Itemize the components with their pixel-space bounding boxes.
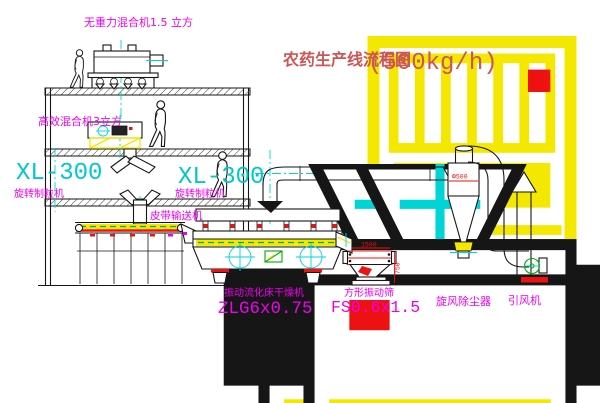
granulator-left-name: 旋转制粒机 <box>14 187 64 200</box>
granulator-left-model: XL-300 <box>16 160 102 187</box>
gravity-mixer <box>88 45 168 89</box>
granulator-right-model: XL-300 <box>178 164 264 191</box>
cad-flowsheet-canvas: 000 <box>0 0 600 403</box>
screen-model-label: FS0.6x1.5 <box>331 298 420 317</box>
pesticide-line-drawing: 000 <box>0 0 600 403</box>
worker-1 <box>70 50 83 88</box>
cyclone-dimension: Φ500 <box>452 174 468 181</box>
gravity-mixer-label: 无重力混合机1.5 立方 <box>84 15 193 29</box>
belt-conveyor-label: 皮带输送机 <box>150 209 203 222</box>
cyclone-name-label: 旋风除尘器 <box>436 294 491 308</box>
high-mixer-label: 高效混合机3立方 <box>38 114 122 128</box>
screen-height-dimension: 750 <box>395 262 402 274</box>
conveyor-supports <box>77 233 184 284</box>
belt-conveyor <box>75 223 196 244</box>
fan-name-label: 引风机 <box>508 293 541 307</box>
screen-width-dimension: 1500 <box>361 242 377 249</box>
granulator-right-name: 旋转制粒机 <box>175 187 225 200</box>
dryer-model-label: ZLG6x0.75 <box>218 299 313 319</box>
page-title-capacity: (500kg/h) <box>368 50 498 77</box>
worker-2 <box>150 101 166 147</box>
dryer-name-label: 振动流化床干燥机 <box>224 286 304 299</box>
